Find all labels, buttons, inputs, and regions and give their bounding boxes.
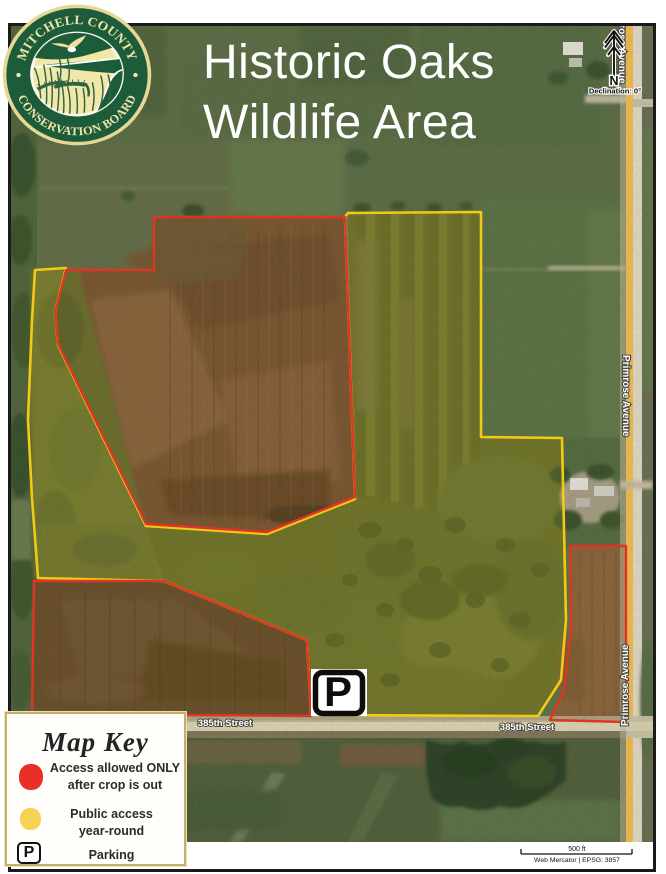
svg-text:Primrose Avenue: Primrose Avenue [620, 644, 631, 726]
svg-text:Primrose Avenue: Primrose Avenue [620, 355, 631, 437]
svg-text:500 ft: 500 ft [568, 846, 586, 853]
svg-text:Declination: 0°: Declination: 0° [589, 87, 641, 96]
svg-text:P: P [324, 668, 352, 715]
svg-text:385th Street: 385th Street [198, 718, 253, 729]
svg-text:385th Street: 385th Street [500, 722, 555, 733]
svg-text:Web Mercator | EPSG: 3857: Web Mercator | EPSG: 3857 [534, 857, 620, 864]
